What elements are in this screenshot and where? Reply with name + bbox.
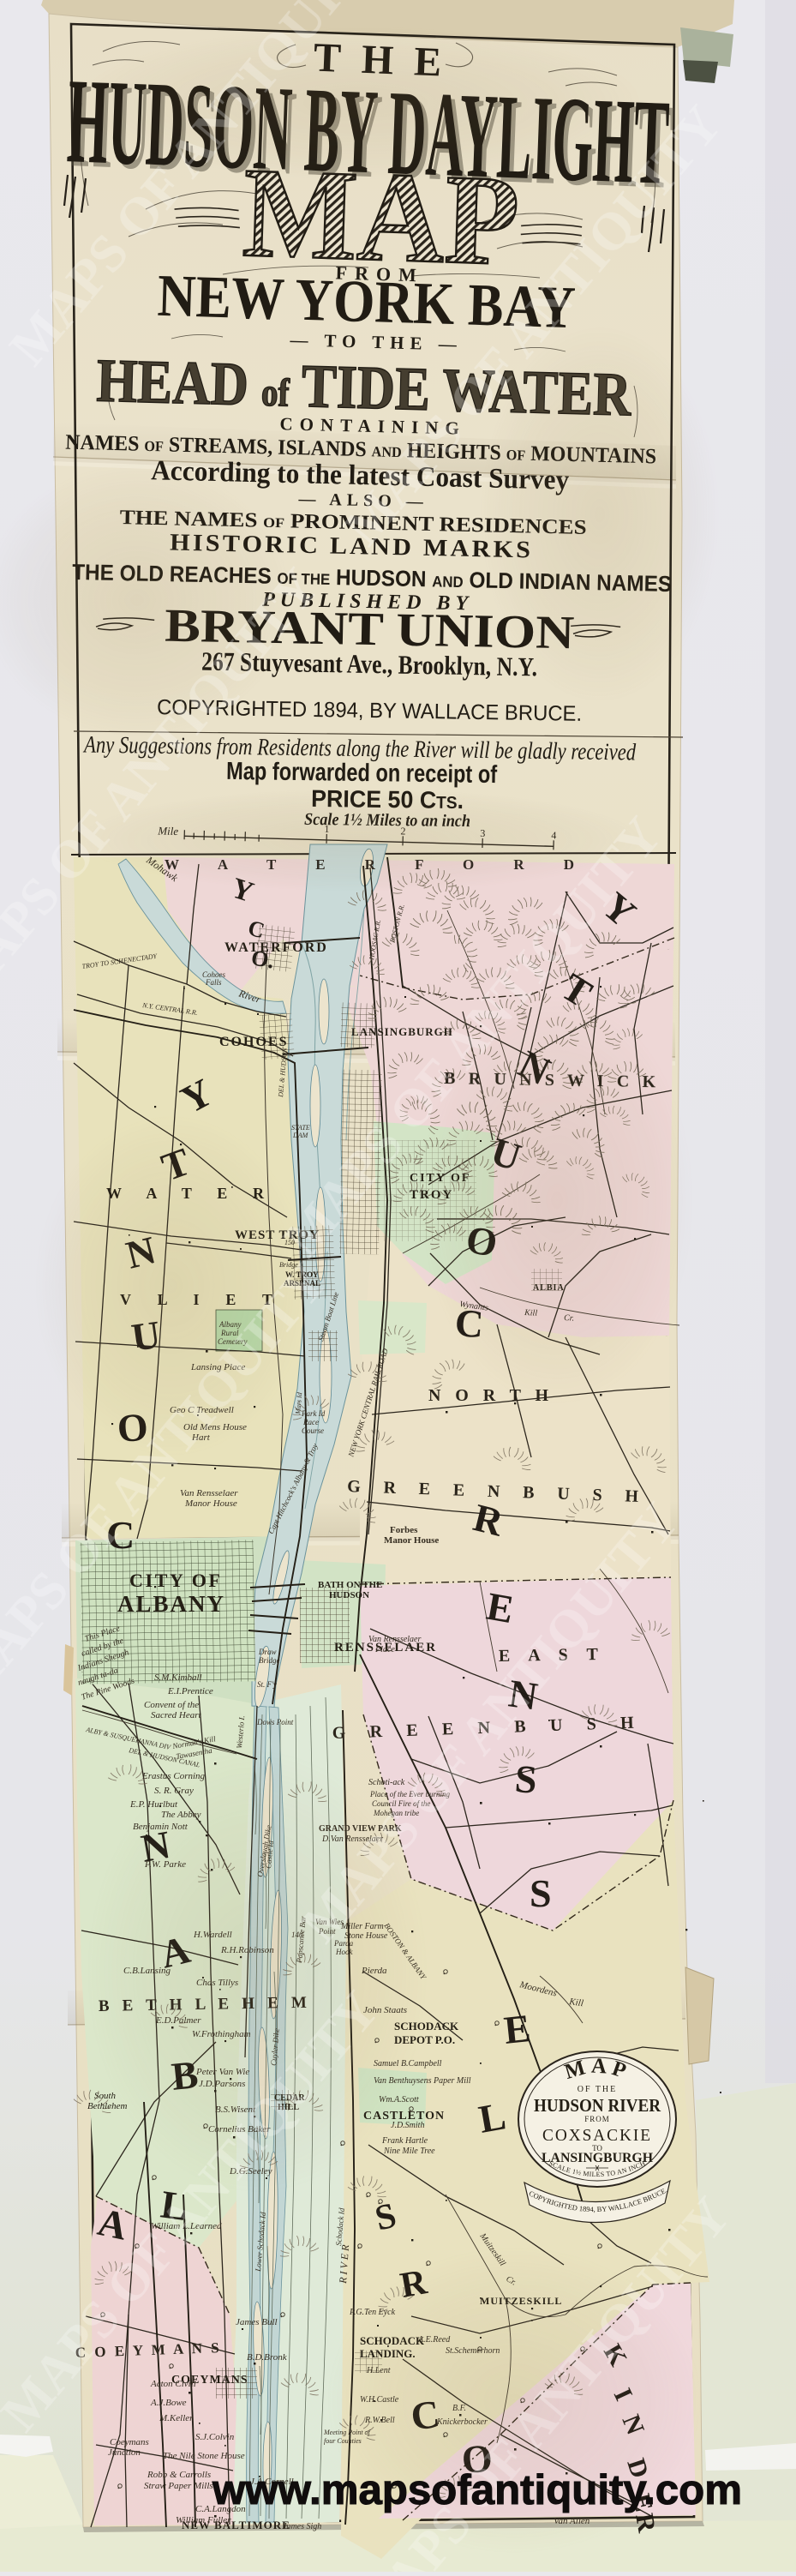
svg-text:J.D.Smith: J.D.Smith — [391, 2121, 424, 2130]
svg-text:Draw: Draw — [258, 1648, 277, 1656]
svg-text:Acton Civill: Acton Civill — [150, 2379, 196, 2389]
svg-text:James Bull: James Bull — [236, 2317, 278, 2327]
svg-text:A.J.Bowe: A.J.Bowe — [150, 2398, 187, 2408]
svg-text:STATE: STATE — [291, 1124, 310, 1132]
svg-text:Junction: Junction — [108, 2447, 141, 2458]
svg-text:WATERFORD: WATERFORD — [224, 940, 328, 955]
svg-text:Frank Hartle: Frank Hartle — [381, 2136, 428, 2146]
svg-text:Van Rensselaer: Van Rensselaer — [180, 1488, 238, 1498]
svg-text:OF THE: OF THE — [578, 2085, 618, 2094]
svg-text:Manor House: Manor House — [184, 1498, 237, 1509]
svg-text:COHOES: COHOES — [219, 1035, 288, 1049]
svg-text:Forbes: Forbes — [390, 1525, 418, 1535]
svg-text:S: S — [513, 1756, 538, 1802]
svg-text:S.M.Kimball: S.M.Kimball — [154, 1672, 202, 1683]
svg-text:M.Keller: M.Keller — [159, 2413, 194, 2423]
svg-text:Course: Course — [302, 1426, 324, 1435]
svg-text:Park Id: Park Id — [301, 1409, 326, 1418]
svg-text:Kill: Kill — [568, 1997, 584, 2009]
svg-text:S.J.Colvin: S.J.Colvin — [195, 2432, 235, 2442]
svg-text:Coeymans: Coeymans — [110, 2437, 149, 2447]
svg-text:Manor House: Manor House — [384, 1535, 439, 1546]
svg-text:William Fuller: William Fuller — [176, 2515, 231, 2525]
svg-text:S: S — [530, 1871, 552, 1915]
svg-text:Place: Place — [374, 1645, 395, 1654]
svg-text:South: South — [94, 2091, 117, 2101]
svg-text:Map forwarded on receipt of: Map forwarded on receipt of — [226, 758, 498, 789]
svg-text:DAM: DAM — [292, 1132, 309, 1139]
svg-text:E: E — [502, 2006, 533, 2052]
svg-text:Nine Mile Tree: Nine Mile Tree — [383, 2147, 435, 2156]
svg-text:James Sigh: James Sigh — [283, 2522, 321, 2531]
svg-text:Race: Race — [302, 1418, 319, 1426]
svg-text:E.I.Prentice: E.I.Prentice — [167, 1686, 213, 1696]
svg-text:Bridge: Bridge — [259, 1656, 280, 1665]
svg-text:www.mapsofantiquity.com: www.mapsofantiquity.com — [212, 2467, 742, 2513]
svg-text:Dows Point: Dows Point — [256, 1718, 294, 1726]
svg-text:Convent of the: Convent of the — [144, 1700, 199, 1710]
svg-text:BATH ON THE: BATH ON THE — [318, 1580, 382, 1590]
svg-text:ALBANY: ALBANY — [117, 1591, 224, 1617]
svg-text:HUDSON: HUDSON — [329, 1590, 369, 1600]
svg-text:FROM: FROM — [584, 2115, 610, 2123]
svg-text:Straw Paper Mills: Straw Paper Mills — [144, 2481, 213, 2491]
svg-text:Sacred Heart: Sacred Heart — [151, 1710, 201, 1720]
svg-text:HUDSON RIVER: HUDSON RIVER — [534, 2095, 661, 2116]
svg-text:The Nile Stone House: The Nile Stone House — [163, 2451, 245, 2461]
svg-text:St. F'y: St. F'y — [257, 1680, 277, 1689]
svg-text:COXSACKIE: COXSACKIE — [542, 2126, 652, 2145]
svg-text:B.D.Bronk: B.D.Bronk — [247, 2352, 288, 2363]
svg-text:Van Rensselaer: Van Rensselaer — [368, 1635, 421, 1644]
svg-text:Robb & Carrolls: Robb & Carrolls — [147, 2470, 211, 2480]
svg-text:Falls: Falls — [205, 978, 222, 987]
